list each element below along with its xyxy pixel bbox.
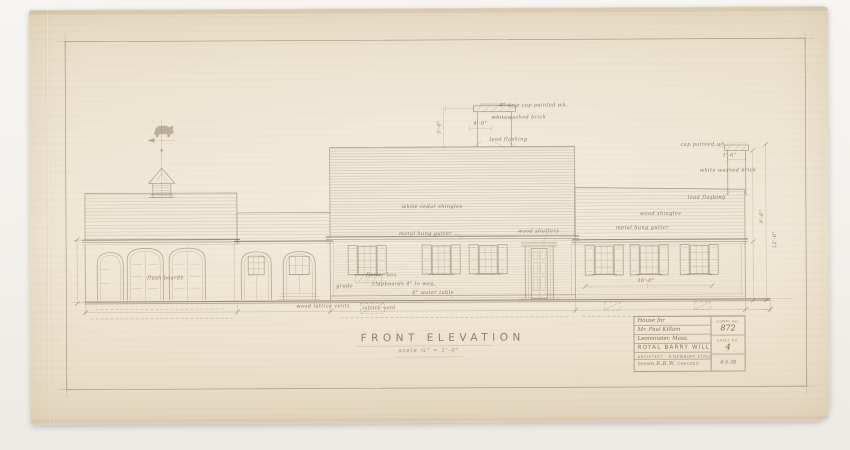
paper-group: 4" drip cap painted wh. whitewashed bric… <box>0 0 850 450</box>
drawn-value: R.B.W. <box>656 361 676 367</box>
drawing-title: FRONT ELEVATION <box>361 332 525 345</box>
note-clapboards: clapboards 4" to wea. <box>372 281 435 287</box>
title-block-firm: ROYAL BARRY WILLS <box>635 344 711 353</box>
drawing-scale: scale ¼" = 1'-0" <box>399 348 460 354</box>
title-block-client: Mr. Paul Killam <box>634 326 710 335</box>
title-block-house-for: House for <box>634 317 710 326</box>
title-block: House for Mr. Paul Killam Leominster, Ma… <box>633 315 745 372</box>
title-block-left: House for Mr. Paul Killam Leominster, Ma… <box>634 317 711 371</box>
sheet-no-value: 4 <box>726 342 731 351</box>
drawn-label: DRAWN <box>638 361 655 366</box>
dim-right-lower: 12'-6" <box>772 231 778 248</box>
note-gutter-right: metal hung gutter <box>616 225 669 231</box>
note-grade: grade <box>336 283 353 289</box>
note-main-chimney-brick: whitewashed brick <box>491 114 546 120</box>
note-garage-doors: flush boards <box>147 275 183 281</box>
note-right-roof-flashing: lead flashing <box>688 195 726 201</box>
date-cell: 4-5-38 <box>712 354 745 370</box>
sheet-no-cell: SHEET NO. 4 <box>712 335 745 354</box>
scanned-architectural-drawing: 4" drip cap painted wh. whitewashed bric… <box>0 0 850 450</box>
note-right-roof: wood shingles <box>640 211 681 217</box>
note-lattice-vent: lattice vent <box>362 305 395 311</box>
comm-no-value: 872 <box>720 323 735 332</box>
note-vents-left: wood lattice vents <box>296 303 349 309</box>
note-gutter-main: metal hung gutter <box>399 231 452 237</box>
comm-no-cell: COMM. NO. 872 <box>711 316 744 335</box>
dim-main-chimney-width: 4'-0" <box>473 121 487 127</box>
checked-label: CHECKED <box>677 361 699 366</box>
dim-right-chimney: 1'-6" <box>723 152 737 158</box>
title-block-drawn-row: DRAWN R.B.W. CHECKED <box>635 360 711 371</box>
date-value: 4-5-38 <box>720 359 736 365</box>
dim-wing: 36'-0" <box>637 278 654 284</box>
dim-right-upper: 9'-6" <box>759 210 765 224</box>
title-block-location: Leominster, Mass. <box>635 335 711 344</box>
title-block-right: COMM. NO. 872 SHEET NO. 4 4-5-38 <box>711 316 744 370</box>
note-main-roof: white cedar shingles <box>402 204 463 210</box>
dim-main-chimney-height: 5'-6" <box>436 120 442 134</box>
note-wood-shutters: wood shutters <box>518 228 559 234</box>
note-right-chimney-cap: cap painted wh. <box>681 142 727 148</box>
note-flower-box: flower box <box>366 272 397 278</box>
pencil-annotations: 4" drip cap painted wh. whitewashed bric… <box>0 0 850 450</box>
note-right-chimney-brick: white washed brick <box>700 167 757 173</box>
note-main-chimney-cap: 4" drip cap painted wh. <box>499 102 568 108</box>
note-main-chimney-flashing: lead flashing <box>490 136 528 142</box>
note-water-table: 6" water table <box>412 290 454 296</box>
